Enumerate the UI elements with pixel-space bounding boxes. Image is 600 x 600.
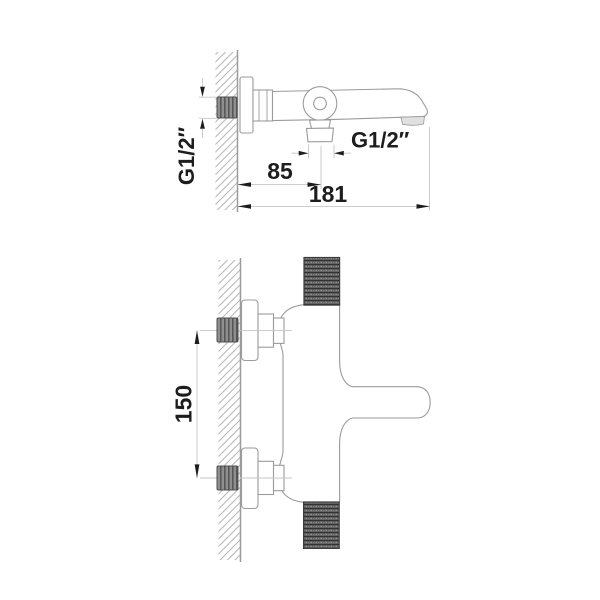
inlet-thread-label: G1/2″ bbox=[174, 126, 199, 185]
arrowhead-left bbox=[238, 204, 252, 209]
knurled-handle-top bbox=[304, 258, 340, 306]
arrowhead-left bbox=[334, 151, 344, 156]
outlet-nut bbox=[307, 128, 334, 142]
wall-to-outlet-dimension-label: 85 bbox=[267, 158, 293, 184]
wall-hatching bbox=[219, 260, 241, 560]
wall-to-spout-dimension-label: 181 bbox=[309, 181, 348, 207]
arrowhead-left bbox=[238, 182, 252, 187]
dimension-inlet-thread bbox=[199, 79, 217, 138]
arrowhead-up bbox=[200, 119, 205, 129]
control-knob-center bbox=[314, 97, 327, 110]
faucet-body-spout bbox=[273, 89, 428, 121]
hex-connector bbox=[253, 90, 273, 121]
plan-view: 150 bbox=[171, 258, 431, 563]
mounting-flange bbox=[240, 77, 253, 133]
arrowhead-down bbox=[195, 464, 200, 478]
inlet-nut bbox=[217, 97, 237, 118]
faucet-technical-drawing: G1/2″ 85 181 G1/2″ bbox=[0, 0, 600, 600]
inlet-nut-top bbox=[217, 318, 238, 342]
outlet-neck bbox=[310, 120, 331, 129]
arrowhead-right bbox=[299, 151, 309, 156]
technical-drawing-canvas: G1/2″ 85 181 G1/2″ bbox=[0, 0, 600, 600]
arrowhead-right bbox=[417, 204, 431, 209]
connection-spacing-dimension-label: 150 bbox=[171, 385, 197, 423]
arrowhead-down bbox=[200, 87, 205, 97]
side-view: G1/2″ 85 181 G1/2″ bbox=[174, 50, 430, 212]
wall-hatching bbox=[216, 52, 238, 210]
spout-aerator bbox=[401, 117, 425, 126]
arrowhead-up bbox=[195, 330, 200, 344]
inlet-nut-bottom bbox=[217, 466, 238, 490]
faucet-body-spout bbox=[278, 305, 430, 503]
outlet-thread-label: G1/2″ bbox=[351, 128, 410, 153]
knurled-handle-bottom bbox=[304, 502, 340, 548]
